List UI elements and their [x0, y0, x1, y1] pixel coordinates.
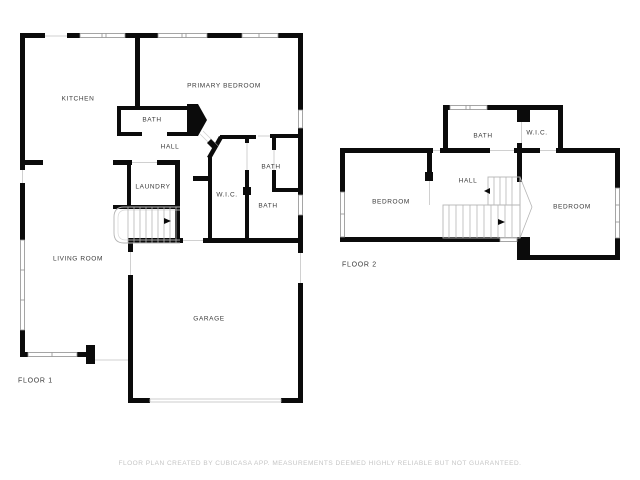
room-label-kitchen: KITCHEN: [62, 96, 95, 103]
stairs-direction-arrow: [484, 188, 490, 194]
room-label-living-room: LIVING ROOM: [53, 256, 103, 263]
bath-angled-wall: [187, 104, 207, 136]
floor-plan-canvas: KITCHEN PRIMARY BEDROOM BATH HALL LAUNDR…: [0, 0, 640, 480]
wic-wall-notch: [517, 105, 530, 122]
floor1-label: FLOOR 1: [18, 378, 53, 385]
floor1-garage-door: [150, 399, 281, 402]
floor1-interior-walls: [20, 38, 300, 243]
floor2-label: FLOOR 2: [342, 262, 377, 269]
room-label-laundry: LAUNDRY: [135, 184, 170, 191]
floor1-stairs: [114, 207, 180, 243]
room-label-bedroom-right: BEDROOM: [553, 204, 591, 211]
floor2-windows: [341, 106, 620, 242]
room-label-garage: GARAGE: [193, 316, 224, 323]
room-label-hall-floor1: HALL: [161, 144, 180, 151]
room-label-wic-floor2: W.I.C.: [526, 130, 547, 137]
floor2-stairs: [443, 177, 532, 238]
room-label-wic-floor1: W.I.C.: [216, 192, 237, 199]
stairs-direction-arrow: [498, 219, 505, 225]
room-label-bedroom-left: BEDROOM: [372, 199, 410, 206]
room-label-hall-floor2: HALL: [459, 178, 478, 185]
floor1-hall-diagonal-door: [200, 131, 218, 150]
disclaimer-text: FLOOR PLAN CREATED BY CUBICASA APP. MEAS…: [119, 460, 522, 467]
floor2-exterior-walls: [340, 105, 620, 260]
room-label-bath-upper-right: BATH: [261, 164, 280, 171]
room-label-bath-lower-right: BATH: [258, 203, 277, 210]
floor-plan-graphics: [0, 0, 640, 480]
room-label-primary-bedroom: PRIMARY BEDROOM: [187, 83, 261, 90]
room-label-bath-floor2: BATH: [473, 133, 492, 140]
room-label-bath-center: BATH: [142, 117, 161, 124]
